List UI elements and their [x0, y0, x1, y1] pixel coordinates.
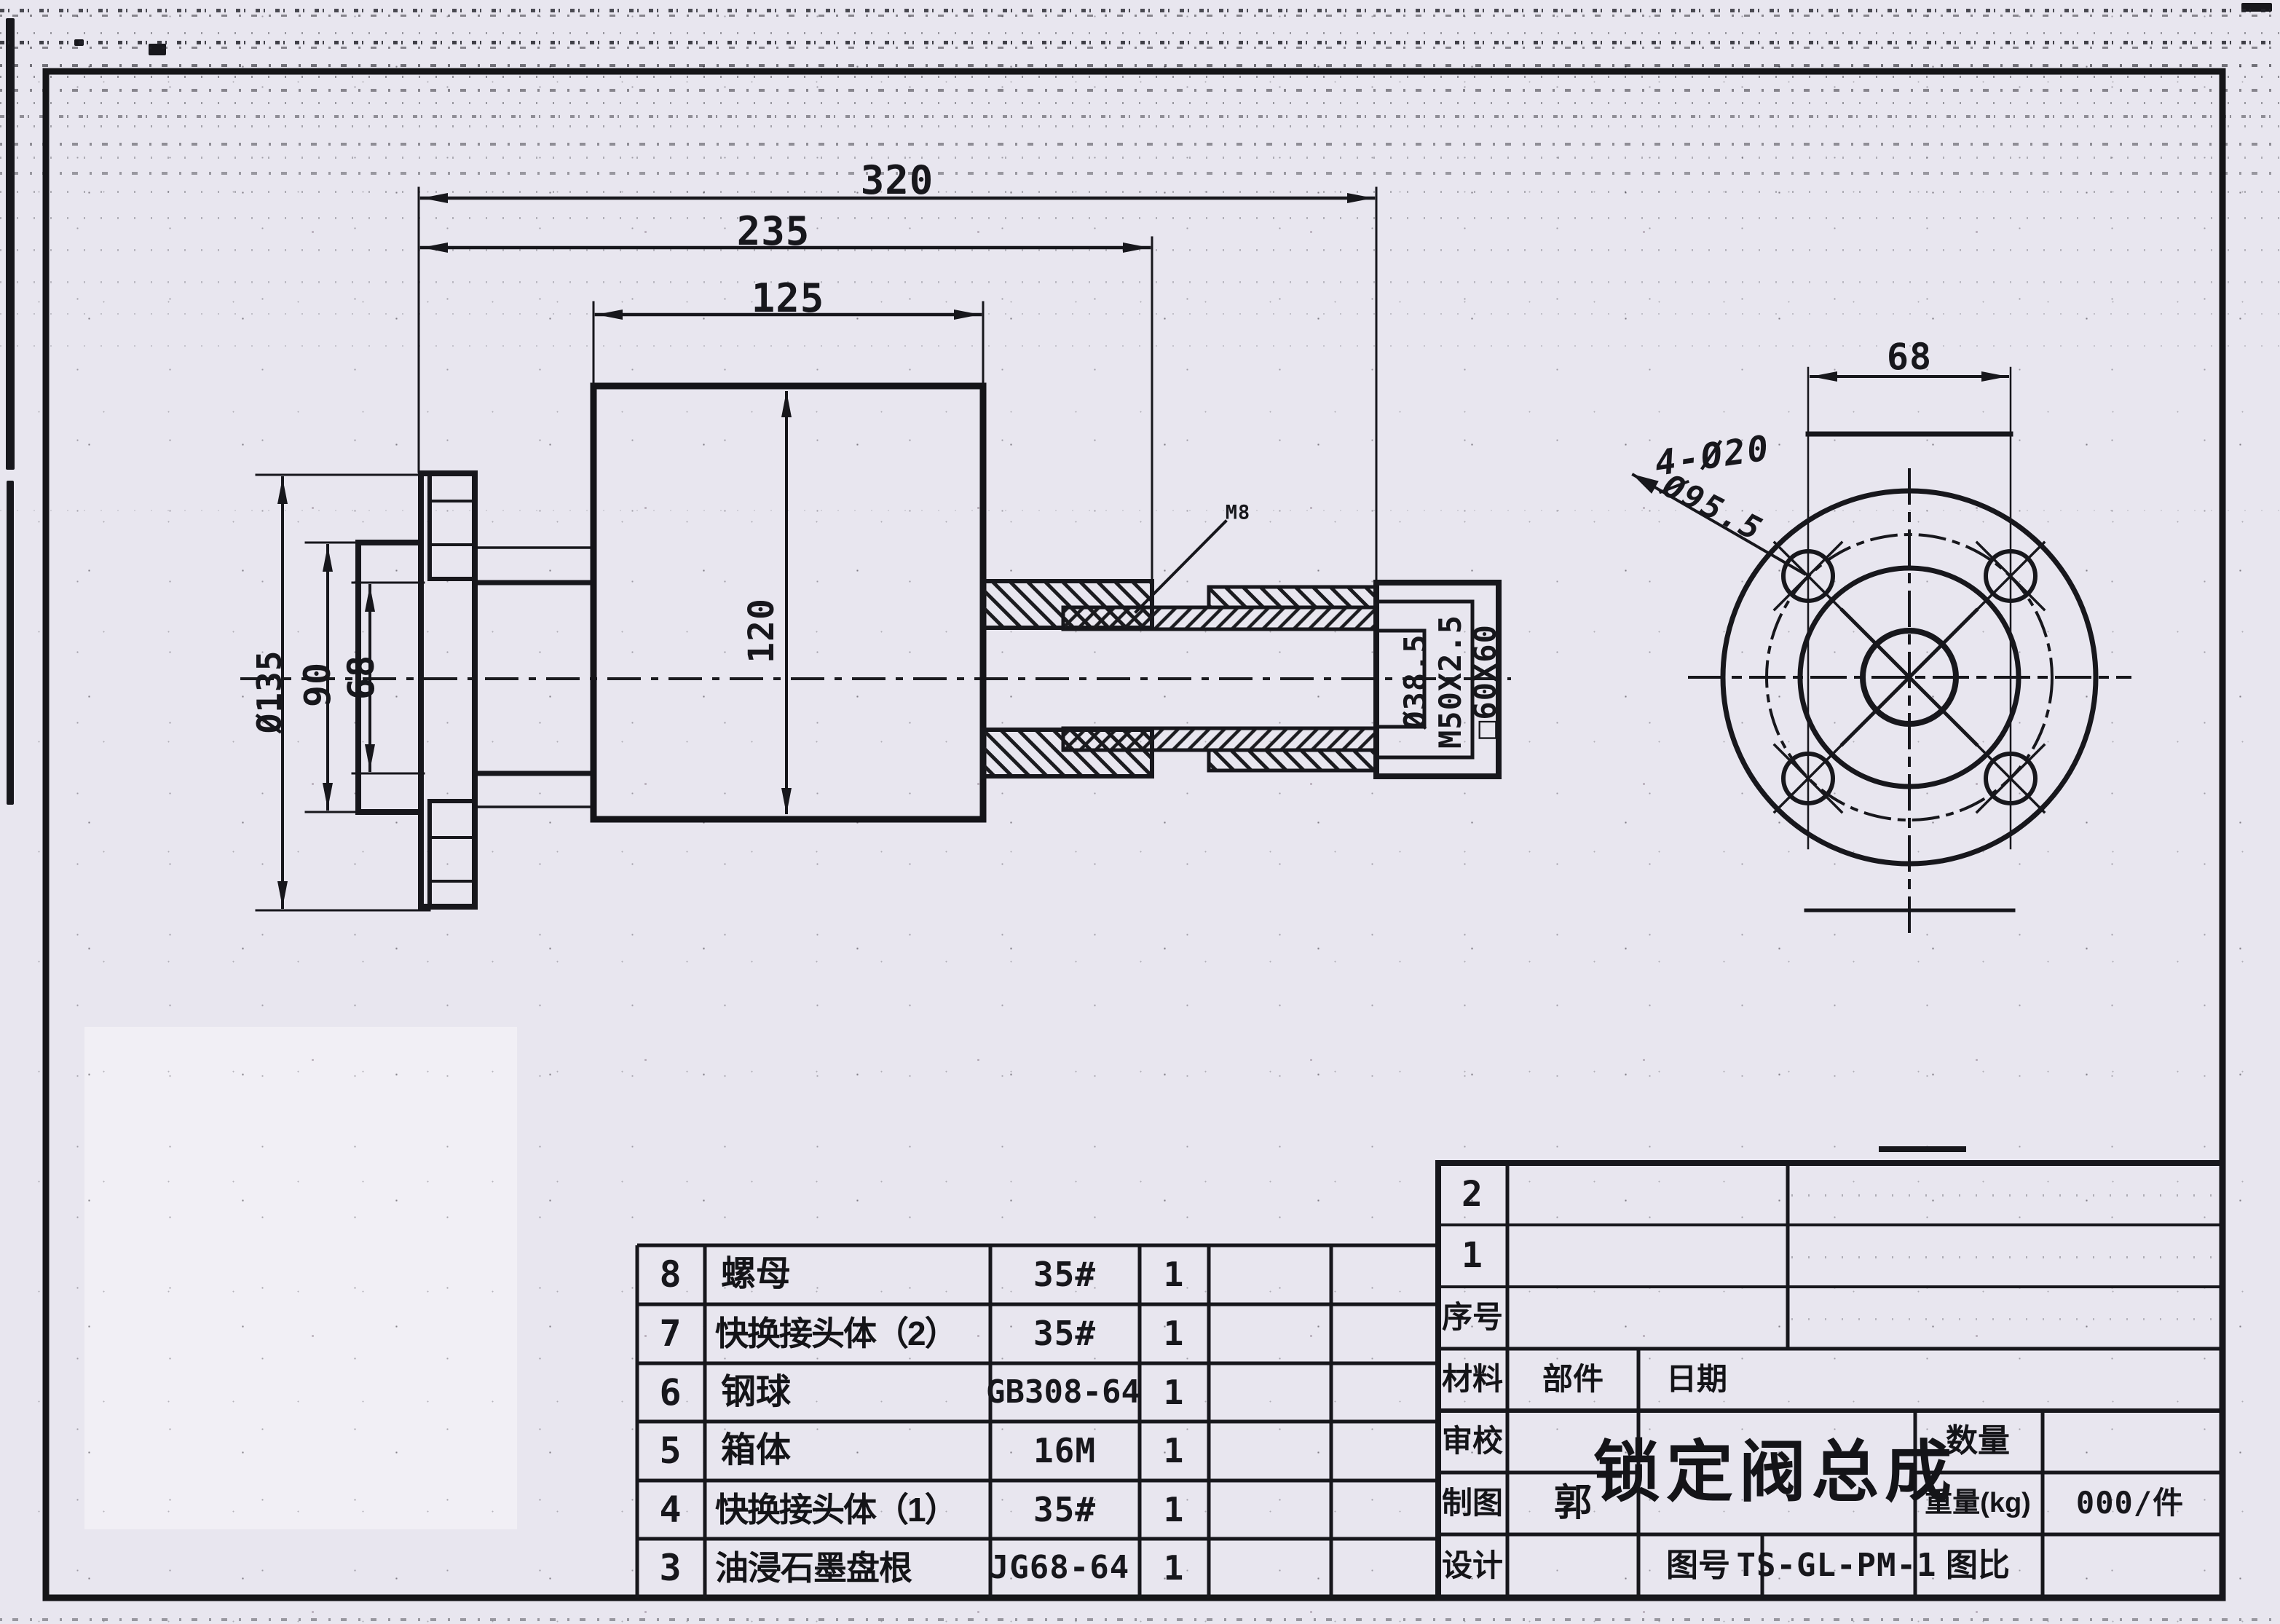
weight-label: 重量(kg): [1925, 1489, 2031, 1517]
dim-bore: 68: [343, 655, 379, 700]
part-name: 油浸石墨盘根: [715, 1551, 912, 1585]
part-qty: 1: [1164, 1493, 1185, 1526]
draft-by: 郭: [1554, 1484, 1592, 1522]
parts-table-grid: [637, 1245, 1438, 1598]
part-no: 7: [659, 1315, 682, 1352]
part-name: 箱体: [721, 1433, 791, 1468]
part-label: 部件: [1542, 1364, 1604, 1395]
part-no: 4: [659, 1491, 682, 1528]
part-qty: 1: [1164, 1376, 1185, 1409]
part-spec: 35#: [1033, 1317, 1096, 1350]
dim-weld-note: M8: [1226, 503, 1251, 523]
dim-hub-od: 90: [299, 662, 336, 707]
part-no: 3: [659, 1550, 682, 1586]
valve-body-section: [593, 386, 983, 819]
part-qty: 1: [1164, 1434, 1185, 1467]
part-spec: 16M: [1033, 1434, 1096, 1467]
dim-nut-square: □60X60: [1470, 624, 1501, 739]
drawing-title: 锁定阀总成: [1593, 1439, 1957, 1506]
dim-overall-length: 320: [861, 161, 934, 200]
part-name: 螺母: [721, 1257, 791, 1292]
drawing-no-label: 图号: [1666, 1550, 1730, 1582]
part-qty: 1: [1164, 1317, 1185, 1350]
design-label: 设计: [1442, 1550, 1503, 1581]
draft-label: 制图: [1442, 1488, 1503, 1518]
seq-label: 序号: [1442, 1302, 1503, 1333]
border-frame: [46, 71, 2222, 1598]
dim-body-height: 120: [744, 598, 779, 663]
part-no: 8: [659, 1256, 682, 1293]
review-label: 审校: [1442, 1426, 1503, 1457]
dim-gland-bore: Ø38.5: [1400, 634, 1431, 729]
weight-value: 000/件: [2076, 1488, 2184, 1518]
seq-1: 1: [1462, 1238, 1483, 1273]
dim-flange-od: Ø135: [253, 650, 286, 734]
qty-label: 数量: [1946, 1425, 2010, 1457]
part-spec: JG68-64: [990, 1552, 1129, 1584]
seq-2: 2: [1462, 1177, 1483, 1212]
part-name: 快换接头体（2）: [715, 1317, 957, 1350]
part-qty: 1: [1164, 1258, 1185, 1291]
part-name: 钢球: [721, 1375, 791, 1410]
part-no: 5: [659, 1432, 682, 1469]
part-no: 6: [659, 1374, 682, 1411]
dim-body-width: 125: [752, 279, 825, 318]
part-qty: 1: [1164, 1551, 1185, 1585]
dim-thread: M50X2.5: [1435, 615, 1466, 749]
scanned-engineering-drawing: 320 235 125 120 Ø135 90 68 Ø38.5 M50X2.5…: [0, 0, 2280, 1624]
material-label: 材料: [1442, 1364, 1503, 1395]
date-label: 日期: [1666, 1364, 1727, 1395]
part-spec: 35#: [1033, 1493, 1096, 1526]
part-spec: 35#: [1033, 1258, 1096, 1291]
dim-flange-hole-span: 68: [1887, 339, 1932, 375]
part-name: 快换接头体（1）: [715, 1493, 957, 1526]
dim-body-to-joint: 235: [737, 212, 810, 251]
scale-label: 图比: [1946, 1550, 2010, 1582]
drawing-no: TS-GL-PM-1: [1737, 1550, 1937, 1582]
part-spec: GB308-64: [986, 1376, 1140, 1408]
